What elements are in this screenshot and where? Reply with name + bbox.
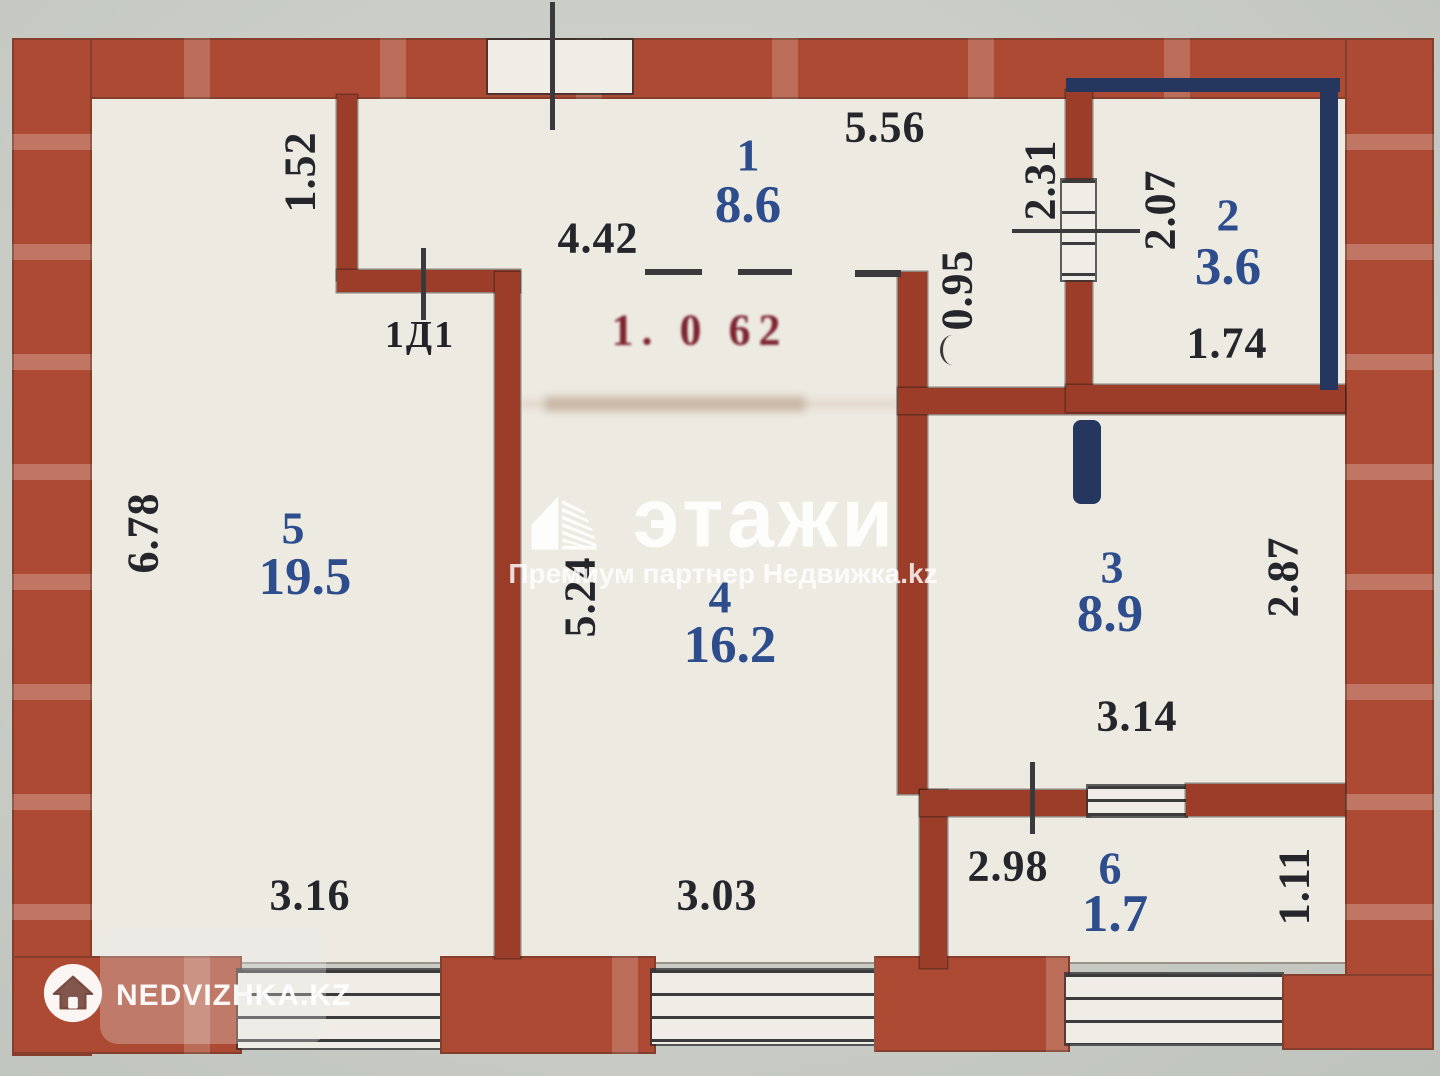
opening-dash (855, 270, 901, 277)
room-area: 8.6 (715, 175, 781, 235)
dimension-label: 2.07 (1135, 170, 1186, 251)
dimension-label: 3.03 (677, 870, 758, 921)
wall-niche-vertical (337, 95, 357, 280)
wall-room5-room4 (495, 272, 520, 958)
wall-outer-bottom-corner (1282, 974, 1434, 1050)
room-number: 1 (737, 129, 760, 182)
watermark-corner-brand: NEDVIZHKA.KZ (116, 979, 351, 1013)
watermark-subtitle: Премиум партнер Недвижка.kz (508, 558, 937, 590)
wall-outer-left (12, 38, 92, 1056)
dimension-label: 1.74 (1187, 318, 1268, 369)
window-symbol-room6 (1088, 786, 1186, 816)
door-leaf-room3 (1073, 420, 1101, 504)
dimension-label: 2.31 (1015, 140, 1066, 221)
dimension-label: 1.11 (1269, 847, 1320, 926)
wall-outer-bottom (874, 956, 1070, 1052)
wall-room6-left (920, 790, 947, 968)
dimension-label: 0.95 (932, 250, 983, 331)
dimension-label: 5.56 (845, 102, 926, 153)
room-area: 16.2 (684, 615, 777, 675)
dimension-label: 6.78 (118, 493, 169, 574)
wall-outer-right (1345, 38, 1434, 1048)
floorplan-photo: 1.52 4.42 5.56 2.31 2.07 1.74 0.95 6.78 … (0, 0, 1440, 1076)
balcony-glazing-right (1320, 78, 1338, 390)
window-symbol-top (488, 40, 632, 93)
opening-dash (645, 269, 702, 275)
dimension-label: 4.42 (558, 213, 639, 264)
room-area: 19.5 (259, 547, 352, 607)
door-cross-line (421, 248, 426, 320)
dimension-cross-line-room2 (1012, 229, 1140, 233)
door-cross-line-room6 (1030, 762, 1035, 834)
wall-room6-top (920, 790, 1090, 816)
dimension-label: 2.87 (1258, 537, 1309, 618)
nedvizhka-house-icon (42, 962, 104, 1029)
room-area: 3.6 (1195, 237, 1261, 297)
dimension-label: 3.16 (270, 870, 351, 921)
dimension-label: 1.52 (275, 132, 326, 213)
opening-dash (738, 269, 792, 275)
faint-wall-line (520, 400, 900, 408)
window-symbol-bottom-center (652, 970, 874, 1044)
wall-room6-top (1186, 784, 1345, 816)
balcony-glazing-top (1066, 78, 1340, 92)
wall-outer-bottom (440, 956, 656, 1054)
red-stamp-text: 1. 0 62 (612, 305, 789, 356)
wall-corridor-room3 (898, 272, 927, 794)
wall-room5-door (337, 270, 520, 292)
room-area: 8.9 (1077, 584, 1143, 644)
wall-room2-bottom (1066, 385, 1345, 412)
etazhi-building-icon (526, 486, 602, 561)
watermark-brand: этажи (633, 470, 897, 567)
window-symbol-bottom-right (1066, 974, 1282, 1044)
room-number: 2 (1217, 189, 1240, 242)
dimension-label: 2.98 (968, 841, 1049, 892)
door-swing-arc (940, 335, 965, 365)
room-area: 1.7 (1082, 884, 1148, 944)
dimension-label: 3.14 (1097, 691, 1178, 742)
door-tag: 1Д1 (385, 313, 455, 357)
dimension-cross-line (550, 2, 555, 130)
